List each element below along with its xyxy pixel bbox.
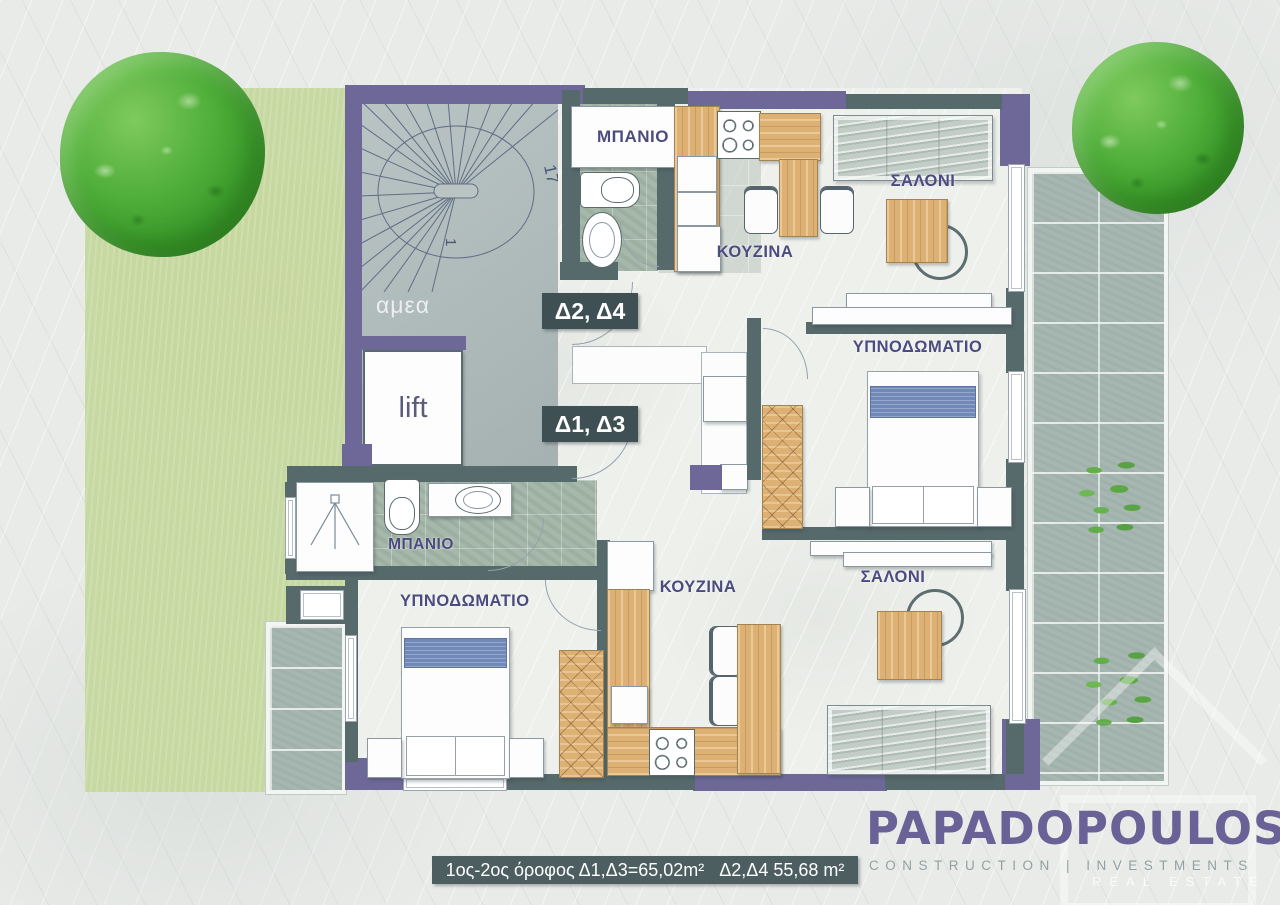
bed-bottom: [401, 627, 510, 779]
kitchen-cabinet: [677, 192, 717, 226]
corridor-cabinet: [720, 464, 748, 490]
shelf: [812, 307, 1012, 325]
nightstand: [509, 738, 544, 778]
wall-segment: [846, 94, 1002, 109]
toilet-left: [384, 479, 420, 535]
caption-text: 1ος-2ος όροφος Δ1,Δ3=65,02m² Δ2,Δ4 55,68…: [446, 860, 845, 881]
window: [1008, 164, 1025, 292]
bed-blanket: [404, 638, 507, 668]
bed-right: [867, 371, 979, 527]
stair-amea-label: αμεα: [376, 292, 430, 319]
room-label-living-top: ΣΑΛΟΝΙ: [878, 172, 968, 191]
room-label-living-bottom: ΣΑΛΟΝΙ: [848, 568, 938, 587]
shelf: [843, 552, 992, 567]
wall-segment: [1006, 720, 1024, 774]
apartment-tag-d1d3: Δ1, Δ3: [542, 406, 638, 442]
room-label-kitchen-bottom: ΚΟΥΖΙΝΑ: [648, 578, 748, 597]
window: [1008, 371, 1025, 463]
wall-segment: [693, 774, 887, 791]
kitchen-cabinet: [677, 156, 717, 192]
room-label-bedroom-bottom: ΥΠΝΟΔΩΜΑΤΙΟ: [400, 592, 525, 611]
shower-left: [296, 482, 374, 572]
bed-foot: [872, 486, 974, 524]
bed-foot: [406, 736, 505, 776]
toilet-top: [580, 172, 640, 208]
stove-bottom: [649, 729, 695, 776]
shower-symbol: [297, 483, 373, 571]
floor-plan-page: 17 1 αμεα lift: [0, 0, 1280, 905]
chair: [744, 186, 778, 234]
stairs-drawing: 17 1: [360, 100, 558, 292]
wall-segment: [345, 85, 585, 104]
table-top-living: [886, 199, 948, 263]
wall-segment: [1006, 288, 1024, 373]
nightstand: [367, 738, 402, 778]
corridor-hall: [572, 346, 707, 384]
window: [345, 635, 357, 722]
kitchen-counter-top: [759, 113, 821, 161]
table-bottom-living: [877, 611, 942, 680]
wall-segment: [345, 104, 362, 444]
room-label-kitchen-top: ΚΟΥΖΙΝΑ: [700, 243, 810, 262]
stair-step-1: 1: [442, 238, 459, 246]
lift-label: lift: [365, 352, 461, 464]
balcony-left: [266, 622, 346, 794]
logo-company: PAPADOPOULOS: [866, 802, 1266, 855]
chair: [820, 186, 854, 234]
kitchen-cabinet: [611, 686, 648, 724]
caption-bar: 1ος-2ος όροφος Δ1,Δ3=65,02m² Δ2,Δ4 55,68…: [432, 856, 858, 884]
nightstand: [835, 487, 870, 527]
wall-segment: [690, 465, 722, 490]
watermark-real-estate: REAL ESTATE: [1092, 874, 1266, 889]
stove-top: [717, 111, 761, 159]
logo-tagline: CONSTRUCTION | INVESTMENTS: [869, 858, 1269, 873]
wall-segment: [356, 336, 466, 350]
window: [300, 590, 344, 620]
room-label-bathroom-top: ΜΠΑΝΙΟ: [597, 127, 669, 147]
wall-segment: [287, 466, 577, 482]
wall-segment: [747, 318, 761, 480]
wardrobe-bottom: [559, 650, 604, 778]
stair-step-17: 17: [540, 163, 558, 185]
corridor-cabinet: [703, 376, 747, 422]
tree: [1072, 42, 1244, 214]
nightstand: [977, 487, 1012, 527]
wall-segment: [885, 774, 1005, 790]
sofa-bottom: [827, 705, 991, 775]
kitchen-cabinet: [607, 541, 654, 591]
apartment-tag-d2d4: Δ2, Δ4: [542, 293, 638, 329]
bed-blanket: [870, 386, 976, 418]
lift: lift: [363, 350, 463, 466]
balcony-plant: [1076, 455, 1148, 540]
kitchen-table-top: [779, 159, 818, 237]
window: [285, 497, 296, 559]
balcony-door: [1009, 589, 1026, 724]
sink-top: [582, 212, 622, 268]
sink-left: [455, 486, 501, 514]
wall-segment: [1000, 94, 1030, 166]
room-label-bedroom-right: ΥΠΝΟΔΩΜΑΤΙΟ: [845, 338, 990, 357]
kitchen-table-bottom: [737, 624, 781, 774]
room-label-bathroom-left: ΜΠΑΝΙΟ: [376, 536, 466, 554]
tree: [60, 52, 265, 257]
wardrobe-right: [762, 405, 803, 529]
